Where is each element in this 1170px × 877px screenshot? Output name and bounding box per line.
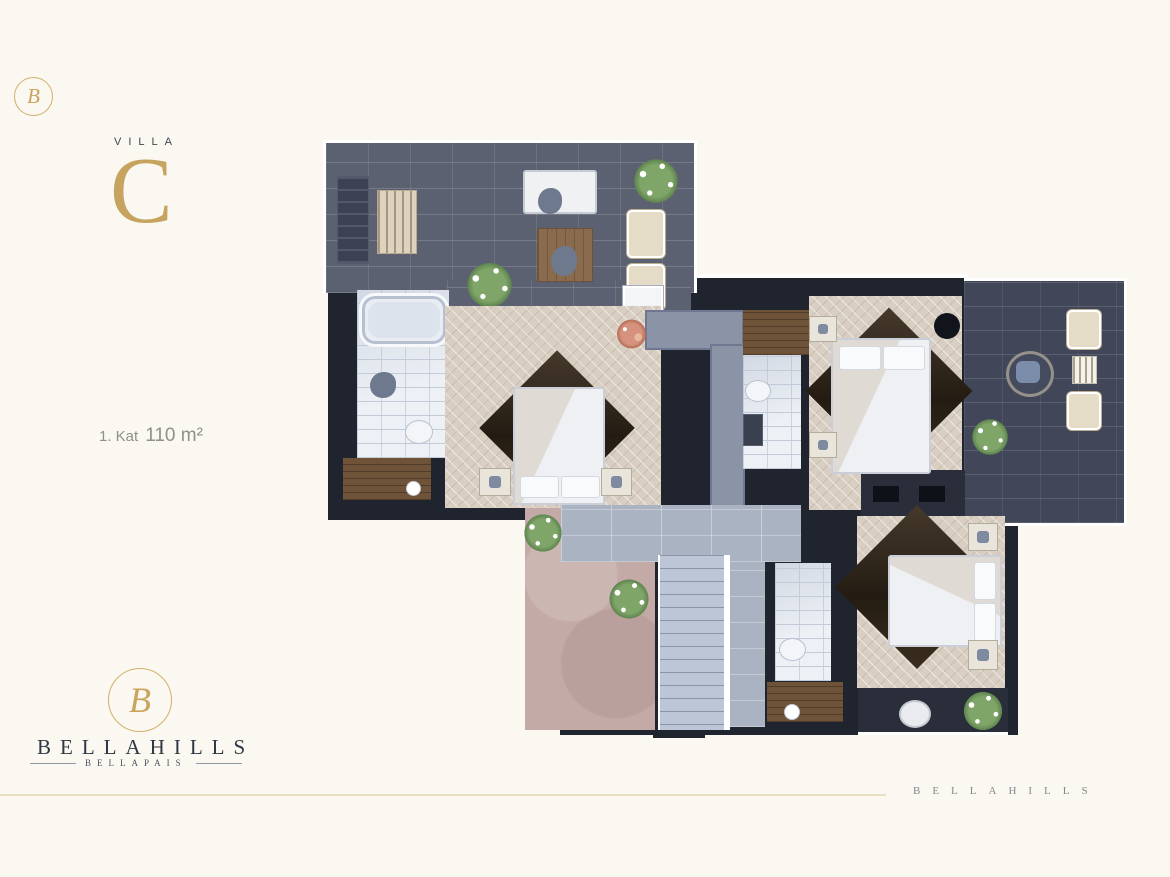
- entry-fixture: [784, 704, 800, 720]
- courtyard-plant-icon: [462, 263, 517, 307]
- bed-2-pillow: [883, 346, 925, 370]
- bed-3-pillow: [974, 562, 996, 600]
- nightstand: [809, 432, 837, 458]
- terrace-plant-icon: [630, 158, 682, 204]
- bed-3-pillow: [974, 603, 996, 641]
- bed-1: [513, 387, 605, 505]
- nightstand: [968, 640, 998, 670]
- balcony-plant-icon: [960, 691, 1006, 731]
- bed-3: [888, 555, 1002, 647]
- subtitle-line-right: [196, 763, 242, 764]
- brand-logo-letter: B: [129, 679, 151, 721]
- bed-2-pillow: [839, 346, 881, 370]
- brand-name: BELLAHILLS: [37, 735, 254, 760]
- bathtub-basin: [368, 302, 440, 338]
- entry-wood-floor: [767, 682, 843, 722]
- floor-area: 110 m²: [145, 425, 203, 447]
- side-table-icon: [934, 313, 960, 339]
- terrace-bench: [337, 176, 369, 264]
- window-slot: [919, 486, 945, 502]
- bathroom-3: [775, 563, 831, 681]
- villa-letter: C: [110, 158, 173, 226]
- nightstand: [809, 316, 837, 342]
- side-terrace-round-table: [1006, 351, 1054, 397]
- staircase: [658, 555, 730, 730]
- north-window-frame: [688, 274, 968, 278]
- floor-number: 1. Kat: [99, 428, 138, 445]
- side-terrace-plant-icon: [971, 416, 1009, 458]
- brand-subtitle-row: BELLAPAIS: [30, 758, 242, 768]
- terrace-lounger: [377, 190, 417, 254]
- nightstand: [601, 468, 632, 496]
- terrace-armchair-1: [627, 210, 665, 258]
- garden-plant-icon: [606, 578, 652, 620]
- person-on-sofa: [538, 188, 562, 214]
- nightstand: [968, 523, 998, 551]
- brand-logo-icon: B: [108, 668, 172, 732]
- footer-divider-line: [0, 794, 886, 796]
- wardrobe-side: [710, 344, 745, 508]
- balcony-chair-icon: [899, 700, 931, 728]
- side-terrace: [964, 278, 1127, 526]
- brand-monogram-icon: B: [14, 77, 53, 116]
- brand-subtitle: BELLAPAIS: [85, 758, 187, 768]
- garden-plant-icon: [521, 513, 565, 553]
- floor-info: 1. Kat 110 m²: [99, 425, 203, 447]
- monogram-letter: B: [27, 84, 40, 109]
- bed-1-pillow: [561, 476, 600, 498]
- subtitle-line-left: [30, 763, 76, 764]
- person-in-bathroom: [370, 372, 396, 398]
- shower-unit: [743, 414, 763, 446]
- round-table-seat: [1016, 361, 1040, 383]
- bathroom-2-entry: [743, 310, 809, 355]
- concrete-path: [561, 505, 801, 562]
- side-terrace-table: [1072, 356, 1097, 384]
- nightstand: [479, 468, 511, 496]
- toilet-2: [745, 380, 771, 402]
- side-terrace-chair-2: [1067, 392, 1101, 430]
- window-slot: [873, 486, 899, 502]
- brochure-page: B VILLA C 1. Kat 110 m² B BELLAHILLS BEL…: [0, 0, 1170, 877]
- bathroom-2: [743, 355, 801, 469]
- bathtub: [359, 293, 449, 347]
- bed-2: [831, 338, 931, 474]
- toilet-3: [779, 638, 806, 661]
- toilet-1: [405, 420, 433, 444]
- person-at-table: [551, 246, 577, 276]
- bed-1-pillow: [520, 476, 559, 498]
- footer-brand: BELLAHILLS: [913, 785, 1100, 797]
- flower-pot-icon: [615, 318, 648, 350]
- side-terrace-chair-1: [1067, 310, 1101, 349]
- floor-fixture: [406, 481, 421, 496]
- floor-plan: [323, 140, 1125, 737]
